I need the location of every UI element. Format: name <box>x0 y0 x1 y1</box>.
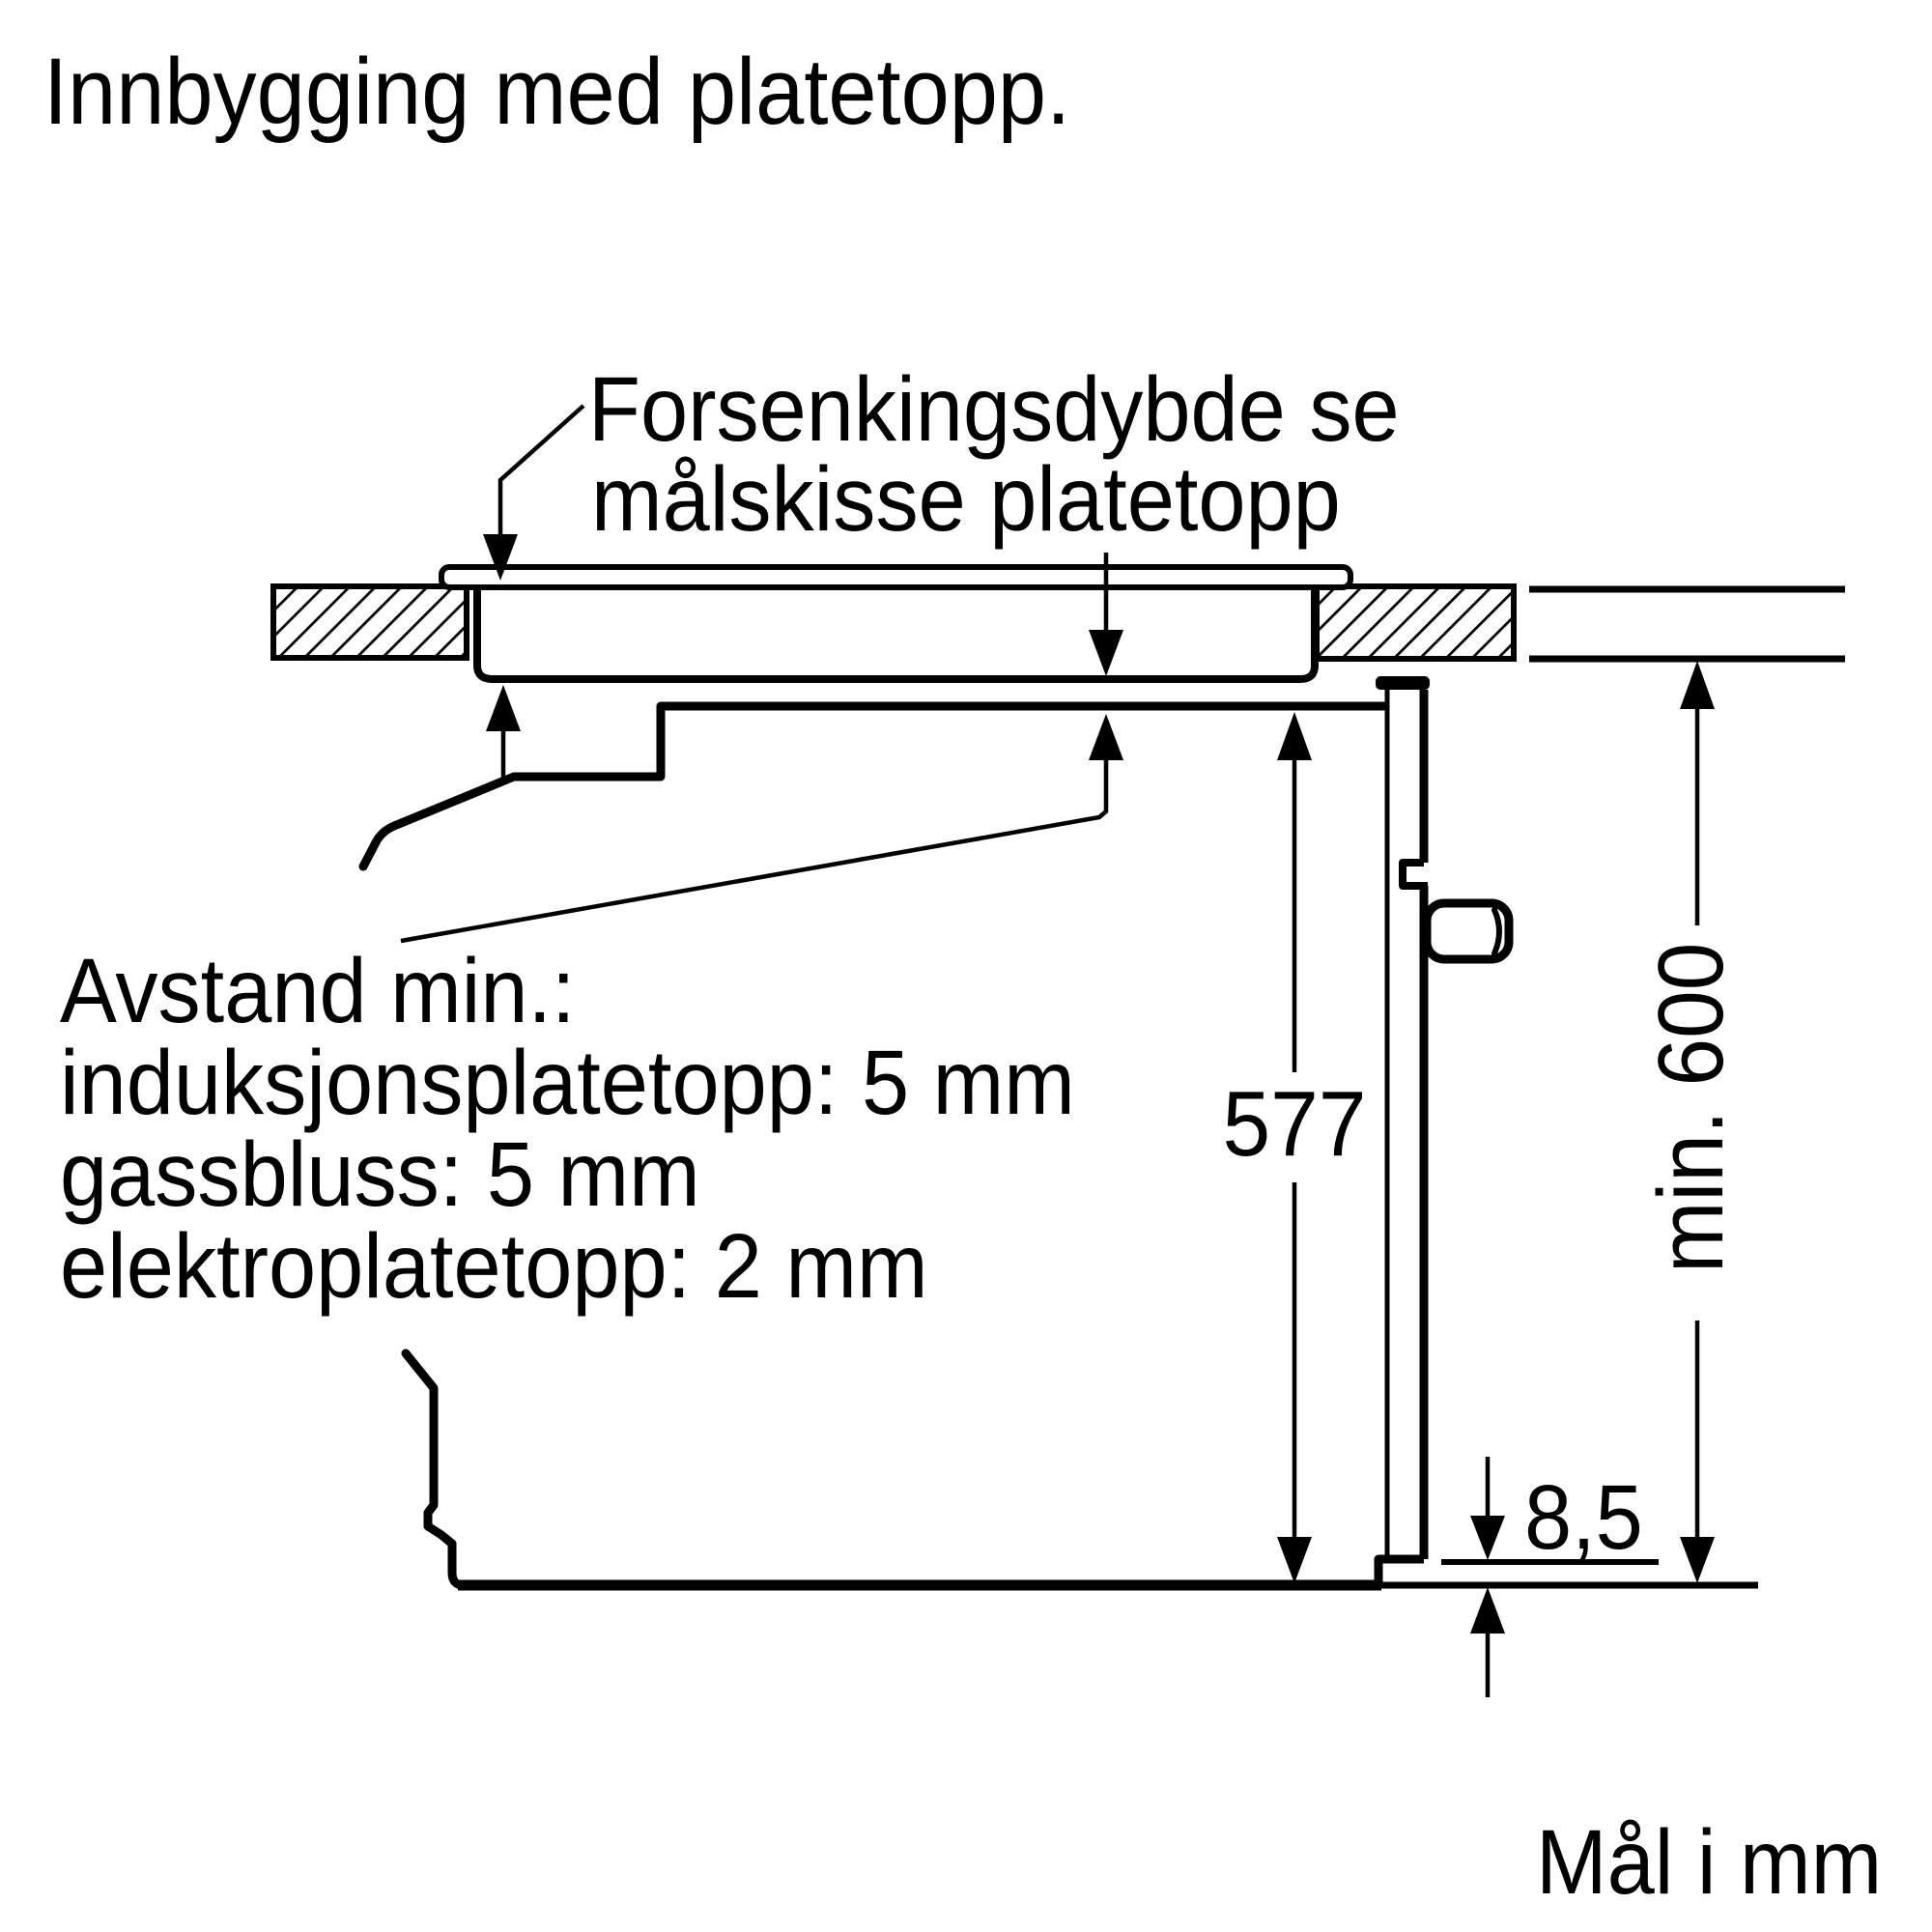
clearance-text-line1: Avstand min.: <box>60 940 576 1042</box>
units-note: Mål i mm <box>1536 1811 1882 1914</box>
recess-callout-line1: Forsenkingsdybde se <box>588 358 1400 461</box>
dim577-value: 577 <box>1223 1071 1367 1176</box>
dim85-value: 8,5 <box>1524 1466 1643 1569</box>
clearance-text-line3: gassbluss: 5 mm <box>60 1123 700 1226</box>
front-panel-top-cap <box>1376 676 1430 690</box>
installation-diagram: Forsenkingsdybde se målskisse platetopp … <box>0 0 1932 1932</box>
cooktop-glass-panel <box>441 567 1350 587</box>
countertop-right-hatch <box>1317 586 1514 659</box>
cooktop-recessed-tub <box>477 578 1315 679</box>
dim600-value: min. 600 <box>1638 943 1743 1273</box>
recess-callout-line2: målskisse platetopp <box>591 448 1341 551</box>
clearance-text-line4: elektroplatetopp: 2 mm <box>60 1215 928 1318</box>
clearance-text-line2: induksjonsplatetopp: 5 mm <box>60 1032 1075 1134</box>
page-title: Innbygging med platetopp. <box>43 39 1070 144</box>
countertop-left-hatch <box>273 586 467 658</box>
cooktop <box>441 567 1350 679</box>
